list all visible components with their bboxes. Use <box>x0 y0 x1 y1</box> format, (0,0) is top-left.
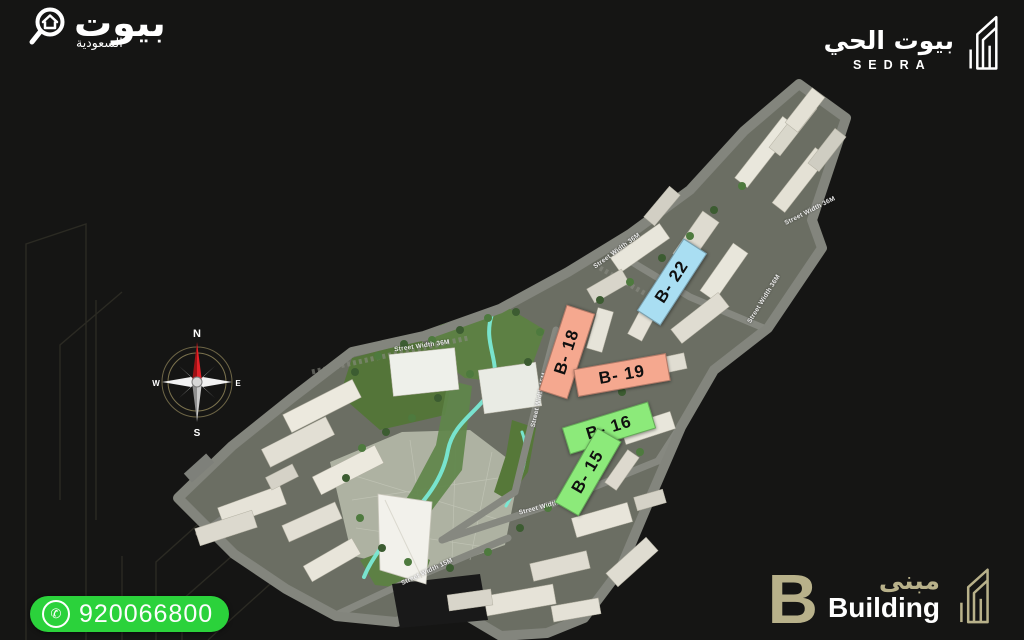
compass-e: E <box>235 379 241 388</box>
legend-label-arabic: مبنى <box>879 568 940 593</box>
phone-number: 920066800 <box>79 600 213 629</box>
south-needle <box>197 382 202 422</box>
compass-rose: N W E S <box>150 326 244 440</box>
building-label-text: B- 19 <box>597 361 646 389</box>
building-outline-icon <box>952 562 996 624</box>
building-outline-icon <box>964 8 1002 72</box>
brand-logo-sedra: بيوت الحي SEDRA <box>824 8 1002 72</box>
south-needle-shade <box>192 382 197 422</box>
compass-s: S <box>194 428 201 439</box>
project-name-arabic: بيوت الحي <box>824 26 954 55</box>
north-needle <box>197 342 202 382</box>
north-needle-shade <box>192 342 197 382</box>
brand-subtitle-arabic: السعودية <box>74 35 166 50</box>
legend-building: B مبنى Building <box>767 562 996 624</box>
site-plan-canvas: Street Width 36M Street Width 36M Street… <box>0 0 1024 640</box>
legend-letter: B <box>767 574 816 624</box>
legend-label-english: Building <box>828 593 940 622</box>
project-name-en: SEDRA <box>824 58 954 72</box>
site-plan-render <box>0 0 1024 640</box>
magnifier-home-icon <box>26 4 70 50</box>
brand-logo-bayut: بيوت السعودية <box>26 4 166 50</box>
phone-icon: ✆ <box>42 600 70 628</box>
phone-pill[interactable]: ✆ 920066800 <box>30 596 229 632</box>
compass-n: N <box>193 328 201 340</box>
compass-w: W <box>152 379 160 388</box>
